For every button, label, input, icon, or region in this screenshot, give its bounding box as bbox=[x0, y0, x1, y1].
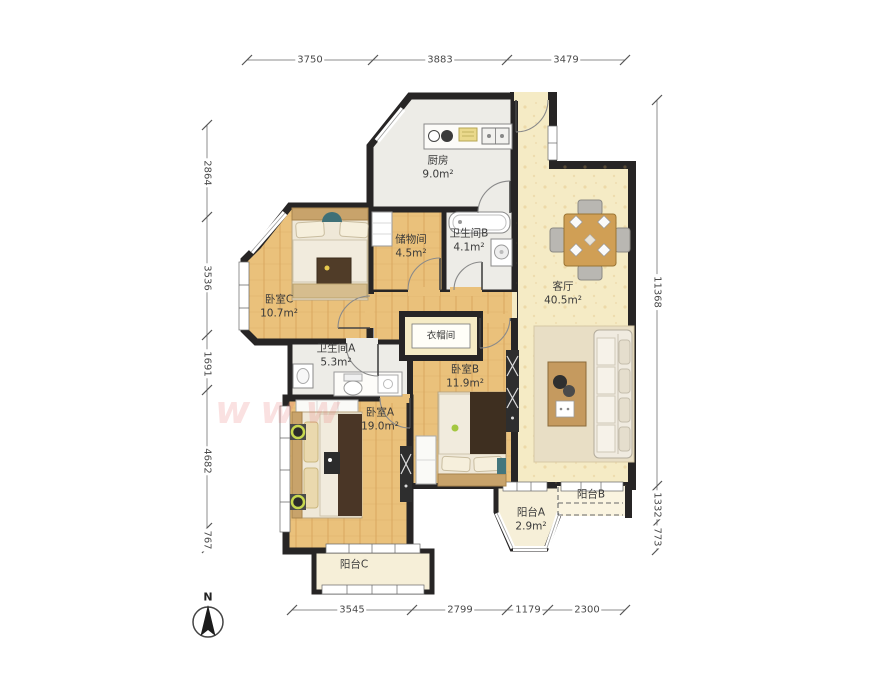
shelf-icon bbox=[372, 212, 392, 246]
washer-icon bbox=[491, 239, 512, 266]
dim-label-right-0: 11368 bbox=[652, 274, 663, 310]
coffee-table-icon bbox=[548, 362, 586, 426]
toilet-icon bbox=[334, 372, 402, 396]
window-bedroom-a-balcony bbox=[326, 544, 420, 553]
dim-label-left-4: 767 bbox=[202, 528, 213, 551]
north-compass-icon bbox=[193, 605, 223, 637]
vanity-icon bbox=[293, 364, 313, 388]
burner-icon bbox=[429, 131, 440, 142]
dim-label-left-1: 3536 bbox=[202, 263, 213, 292]
bed-icon-bedroom-a bbox=[290, 400, 362, 518]
window-entry-wall bbox=[548, 126, 557, 160]
dim-label-bottom-3: 2300 bbox=[572, 605, 601, 616]
dim-label-top-2: 3479 bbox=[551, 55, 580, 66]
balcony-b-right-wall bbox=[625, 486, 632, 518]
bed-icon-bedroom-c bbox=[292, 208, 368, 300]
dim-label-left-2: 1691 bbox=[202, 349, 213, 378]
dim-label-left-0: 2864 bbox=[202, 158, 213, 187]
pot-icon bbox=[441, 130, 453, 142]
kitchen-counter-icon bbox=[424, 124, 512, 149]
window-living-balcony-a bbox=[503, 482, 547, 491]
floor-plan bbox=[0, 0, 891, 686]
room-kitchen bbox=[370, 96, 514, 210]
dim-label-top-0: 3750 bbox=[295, 55, 324, 66]
dim-label-right-2: 773 bbox=[652, 525, 663, 548]
ac-duct-icon bbox=[506, 350, 519, 432]
window-bedroom-a-bay bbox=[280, 406, 290, 532]
floor-plan-page: www 厨房9.0m² 储物间4.5m² 卫生间B4.1m² 卧室C10.7m²… bbox=[0, 0, 891, 686]
bathtub-icon bbox=[449, 212, 510, 233]
closet-box bbox=[402, 314, 480, 358]
dim-label-top-1: 3883 bbox=[425, 55, 454, 66]
dim-label-bottom-2: 1179 bbox=[513, 605, 542, 616]
dim-label-bottom-0: 3545 bbox=[337, 605, 366, 616]
ac-duct-icon-2 bbox=[400, 446, 412, 502]
window-living-balcony-b bbox=[561, 482, 623, 491]
window-balcony-c bbox=[322, 585, 424, 594]
dim-label-left-3: 4682 bbox=[202, 446, 213, 475]
sofa-icon bbox=[594, 330, 632, 458]
dim-label-bottom-1: 2799 bbox=[445, 605, 474, 616]
cutting-board-icon bbox=[459, 128, 477, 141]
dim-label-right-1: 1332 bbox=[652, 490, 663, 519]
north-label: N bbox=[203, 591, 212, 604]
